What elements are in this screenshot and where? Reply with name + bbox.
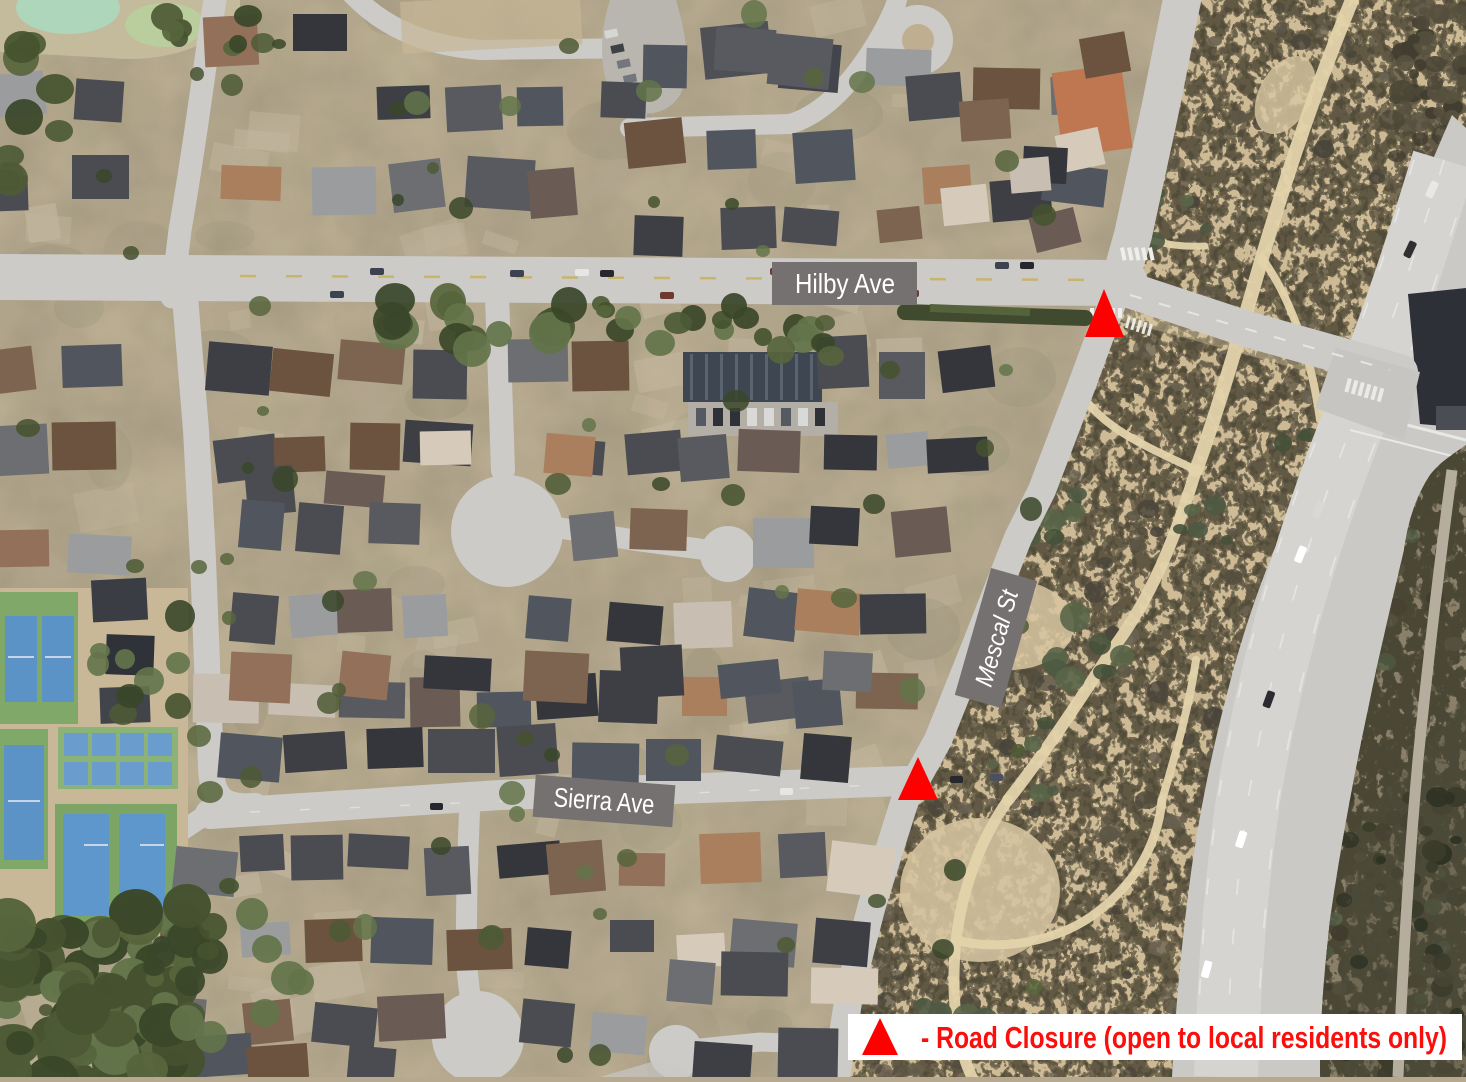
svg-text:Hilby Ave: Hilby Ave [795, 268, 895, 299]
svg-text:- Road Closure (open to local: - Road Closure (open to local residents … [921, 1020, 1447, 1055]
